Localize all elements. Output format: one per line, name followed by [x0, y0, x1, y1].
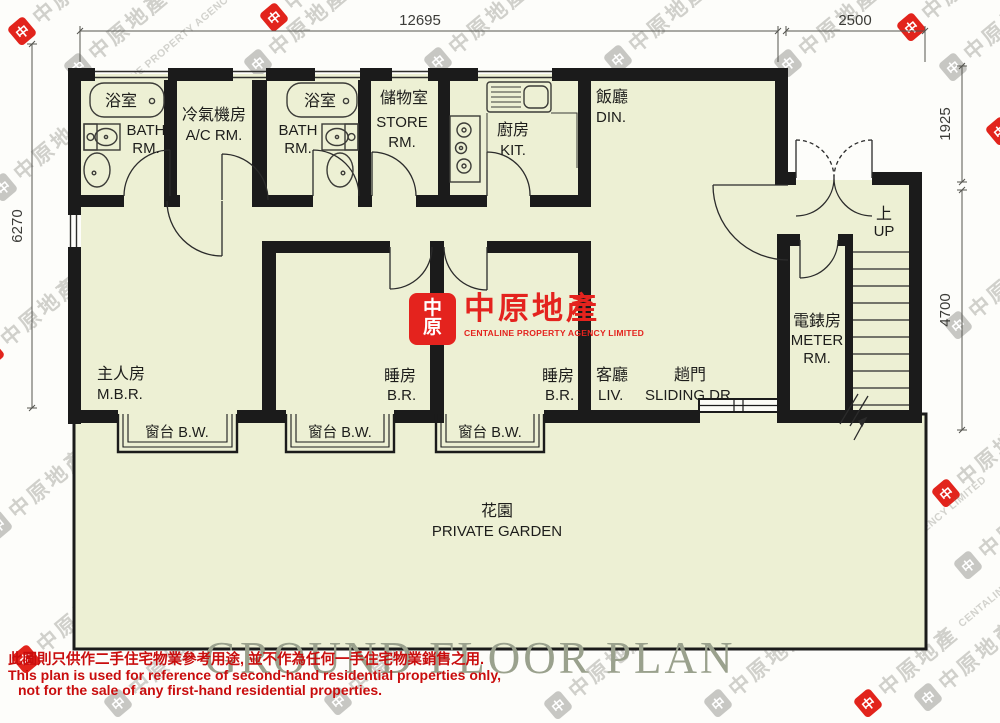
room-label-bath1-en1: BATH — [127, 122, 166, 139]
room-label-br1-en: B.R. — [387, 387, 416, 404]
garden-label-zh: 花園 — [481, 502, 513, 520]
bay-window-label-3: 窗台 B.W. — [458, 423, 522, 441]
room-label-sliding-en: SLIDING DR. — [645, 387, 735, 404]
bay-window-label-1: 窗台 B.W. — [145, 423, 209, 441]
logo-name-en: CENTALINE PROPERTY AGENCY LIMITED — [464, 328, 644, 338]
garden-label-en: PRIVATE GARDEN — [432, 523, 562, 540]
disclaimer-en-line2: not for the sale of any first-hand resid… — [18, 683, 501, 698]
room-label-meter-zh: 電錶房 — [793, 312, 841, 330]
room-label-meter-en1: METER — [791, 332, 844, 349]
label-up-en: UP — [874, 223, 895, 240]
room-label-br1-zh: 睡房 — [384, 367, 416, 385]
room-label-dining-zh: 飯廳 — [596, 87, 628, 106]
room-label-bath1-zh: 浴室 — [105, 92, 137, 110]
room-label-ac-zh: 冷氣機房 — [182, 106, 246, 124]
room-label-br2-zh: 睡房 — [542, 367, 574, 385]
bay-window-label-2: 窗台 B.W. — [308, 423, 372, 441]
disclaimer: 此圖則只供作二手住宅物業參考用途, 並不作為任何一手住宅物業銷售之用. This… — [8, 653, 501, 698]
room-label-kitchen-en: KIT. — [500, 142, 526, 159]
room-label-mbr-zh: 主人房 — [97, 365, 145, 383]
room-label-br2-en: B.R. — [545, 387, 574, 404]
centaline-logo-mark: 中 原 — [409, 293, 456, 345]
centaline-logo: 中 原 中原地產 CENTALINE PROPERTY AGENCY LIMIT… — [409, 293, 644, 345]
room-label-living-zh: 客廳 — [596, 365, 628, 384]
disclaimer-en-line1: This plan is used for reference of secon… — [8, 668, 501, 683]
disclaimer-zh: 此圖則只供作二手住宅物業參考用途, 並不作為任何一手住宅物業銷售之用. — [8, 653, 501, 668]
room-label-mbr-en: M.B.R. — [97, 386, 143, 403]
room-label-bath2-en1: BATH — [279, 122, 318, 139]
dim-right-lower: 4700 — [937, 293, 954, 326]
room-label-bath1-en2: RM. — [132, 140, 160, 157]
room-label-sliding-zh: 趟門 — [674, 366, 706, 384]
room-label-bath2-zh: 浴室 — [304, 92, 336, 110]
room-label-store-en1: STORE — [376, 114, 427, 131]
room-label-kitchen-zh: 廚房 — [497, 120, 529, 139]
dim-top-right: 2500 — [838, 12, 871, 29]
room-label-store-zh: 儲物室 — [380, 89, 428, 107]
room-label-ac-en: A/C RM. — [186, 127, 243, 144]
room-label-meter-en2: RM. — [803, 350, 831, 367]
room-label-bath2-en2: RM. — [284, 140, 312, 157]
dim-right-upper: 1925 — [937, 107, 954, 140]
room-label-store-en2: RM. — [388, 134, 416, 151]
floor-plan-drawing: 12695 2500 1925 4700 6270 浴室 BATH RM. 冷氣… — [0, 0, 1000, 700]
room-label-living-en: LIV. — [598, 387, 623, 404]
logo-name-zh: 中原地產 — [464, 293, 644, 326]
label-up-zh: 上 — [876, 205, 892, 223]
room-label-dining-en: DIN. — [596, 109, 626, 126]
dim-top: 12695 — [399, 12, 441, 29]
logo-mark-bottom: 原 — [423, 319, 442, 338]
dim-left: 6270 — [9, 209, 26, 242]
